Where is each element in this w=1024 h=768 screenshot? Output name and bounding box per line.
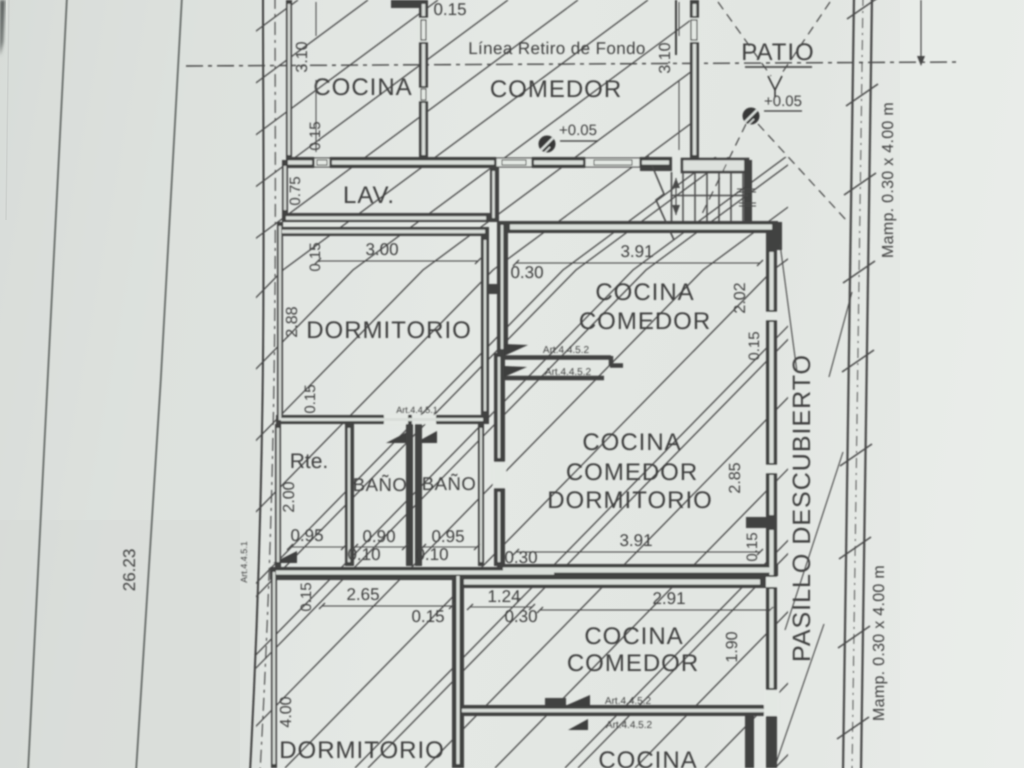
svg-text:COCINA: COCINA (595, 279, 694, 306)
svg-text:Art.4.4.5.1: Art.4.4.5.1 (396, 405, 438, 415)
svg-text:0.15: 0.15 (744, 532, 761, 561)
svg-text:2.88: 2.88 (284, 306, 301, 337)
svg-text:0.15: 0.15 (411, 607, 444, 626)
svg-text:LAV.: LAV. (343, 182, 395, 209)
svg-text:BAÑO: BAÑO (353, 474, 407, 495)
svg-text:2.91: 2.91 (652, 589, 685, 608)
svg-text:0.30: 0.30 (504, 607, 537, 626)
svg-text:COCINA: COCINA (598, 747, 697, 768)
svg-text:DORMITORIO: DORMITORIO (279, 737, 445, 764)
svg-text:DORMITORIO: DORMITORIO (547, 487, 713, 514)
svg-text:2.65: 2.65 (346, 585, 379, 604)
svg-text:1.90: 1.90 (724, 631, 741, 662)
svg-text:0.15: 0.15 (746, 331, 763, 360)
svg-text:0.75: 0.75 (287, 176, 304, 205)
svg-text:Art.4.4.5.1: Art.4.4.5.1 (239, 541, 249, 583)
svg-text:+0.05: +0.05 (764, 93, 802, 110)
svg-text:DORMITORIO: DORMITORIO (306, 317, 472, 344)
svg-text:4.00: 4.00 (278, 696, 295, 727)
svg-text:COMEDOR: COMEDOR (579, 308, 711, 335)
svg-text:0.15: 0.15 (302, 384, 319, 413)
svg-text:+0.05: +0.05 (559, 122, 597, 139)
svg-text:0.15: 0.15 (433, 0, 466, 19)
svg-text:Art.4.4.5.2: Art.4.4.5.2 (543, 345, 590, 356)
svg-text:COCINA: COCINA (582, 429, 681, 456)
svg-text:3.91: 3.91 (620, 242, 653, 261)
svg-text:2.85: 2.85 (727, 462, 744, 493)
svg-text:Rte.: Rte. (290, 450, 329, 473)
svg-text:26.23: 26.23 (120, 549, 139, 592)
svg-text:2.00: 2.00 (281, 481, 298, 512)
svg-text:3.10: 3.10 (294, 41, 311, 72)
svg-text:0.15: 0.15 (307, 121, 324, 150)
svg-text:0.10: 0.10 (347, 545, 380, 564)
svg-text:COMEDOR: COMEDOR (490, 76, 622, 103)
svg-text:PATIO: PATIO (741, 39, 814, 66)
svg-text:COCINA: COCINA (313, 74, 412, 101)
svg-text:Línea Retiro de Fondo: Línea Retiro de Fondo (468, 39, 646, 58)
svg-text:PASILLO DESCUBIERTO: PASILLO DESCUBIERTO (788, 354, 816, 662)
svg-text:0.95: 0.95 (431, 527, 464, 546)
svg-text:Art.4.4.5.2: Art.4.4.5.2 (605, 696, 652, 707)
svg-text:0.15: 0.15 (298, 582, 315, 611)
svg-text:0.30: 0.30 (504, 548, 537, 567)
svg-text:0.10: 0.10 (415, 545, 448, 564)
svg-text:3.91: 3.91 (619, 531, 652, 550)
svg-text:COMEDOR: COMEDOR (566, 459, 698, 486)
svg-text:COCINA: COCINA (584, 623, 683, 650)
svg-text:Art.4.4.5.2: Art.4.4.5.2 (606, 720, 653, 731)
svg-text:1.24: 1.24 (487, 587, 520, 606)
svg-text:Mamp. 0.30 x 4.00 m: Mamp. 0.30 x 4.00 m (871, 565, 888, 721)
svg-text:0.15: 0.15 (307, 242, 324, 271)
svg-text:0.30: 0.30 (510, 263, 543, 282)
svg-text:Art.4.4.5.2: Art.4.4.5.2 (545, 367, 592, 378)
svg-text:COMEDOR: COMEDOR (567, 650, 699, 677)
svg-text:0.90: 0.90 (362, 527, 395, 546)
svg-text:BAÑO: BAÑO (422, 473, 476, 494)
svg-text:0.95: 0.95 (290, 526, 323, 545)
svg-text:Mamp. 0.30 x 4.00 m: Mamp. 0.30 x 4.00 m (880, 102, 897, 258)
svg-text:3.10: 3.10 (657, 42, 674, 73)
svg-text:3.00: 3.00 (365, 240, 398, 259)
svg-text:2.02: 2.02 (732, 282, 749, 313)
